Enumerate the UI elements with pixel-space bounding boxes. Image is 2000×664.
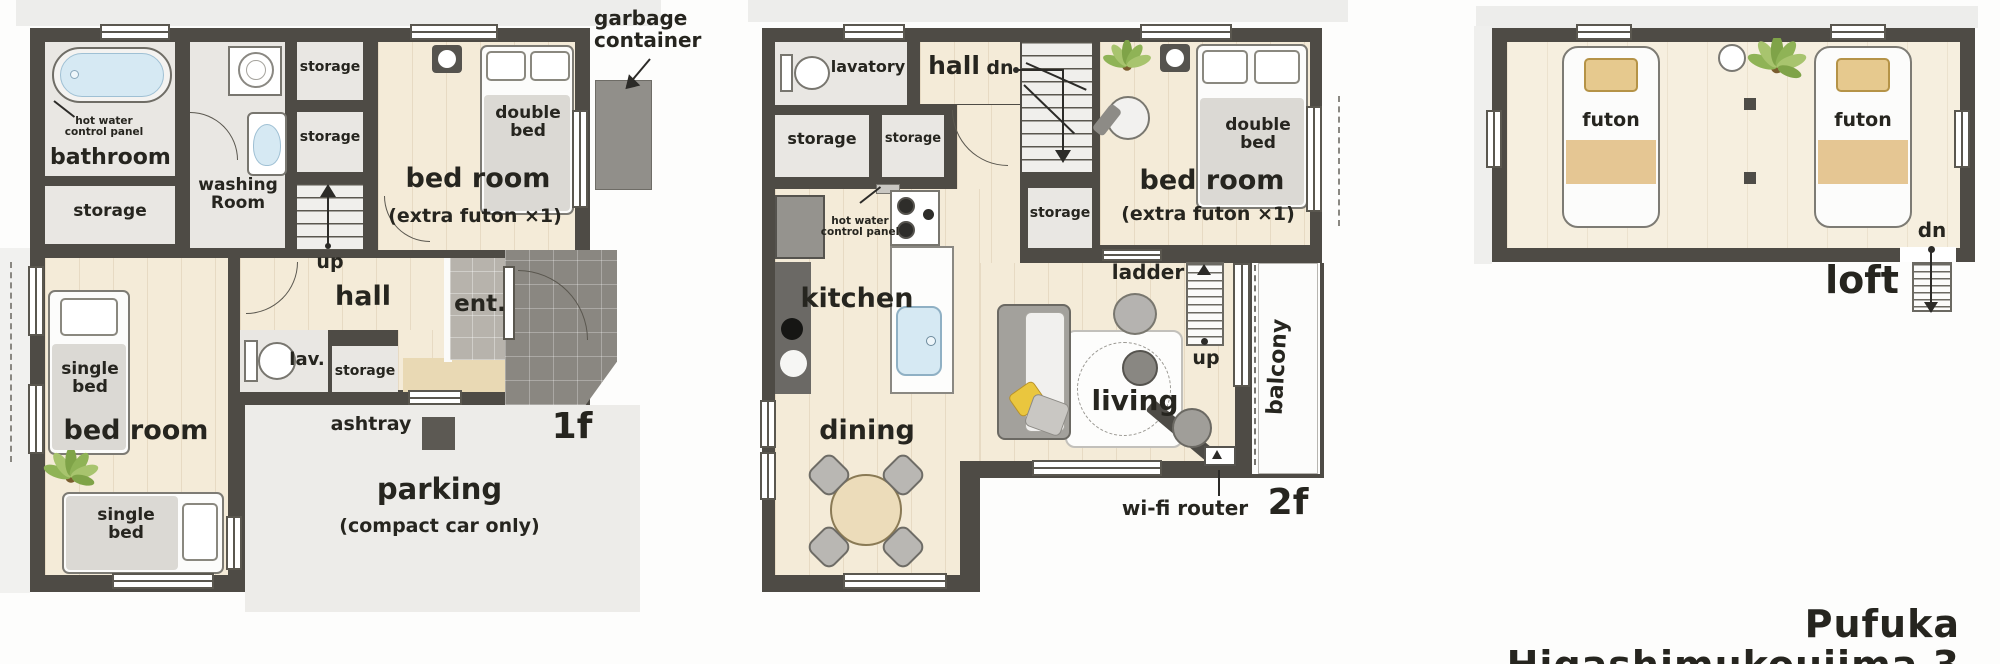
floor-plan-sheet: hot water control panel bathroom storage… xyxy=(0,0,2000,664)
label-futon: futon xyxy=(1827,110,1899,131)
floor-label-loft: loft xyxy=(1816,260,1908,301)
ladder-arrow-line xyxy=(1930,252,1932,304)
futon-blanket xyxy=(1566,140,1656,184)
floor-marker xyxy=(1744,172,1756,184)
futon-pillow xyxy=(1836,58,1890,92)
window xyxy=(1486,110,1502,168)
page-title: Pufuka Higashimukoujima 3 xyxy=(1415,604,1960,664)
label-dn: dn xyxy=(1908,220,1956,242)
window xyxy=(1576,24,1632,40)
floor-marker xyxy=(1744,98,1756,110)
ladder-arrow-down xyxy=(1924,302,1938,313)
label-futon: futon xyxy=(1575,110,1647,131)
potted-plant xyxy=(1744,38,1810,92)
floor-plan-loft: futon futon dn loft xyxy=(0,0,2000,664)
side-table xyxy=(1718,44,1746,72)
futon-pillow xyxy=(1584,58,1638,92)
window xyxy=(1830,24,1886,40)
futon-blanket xyxy=(1818,140,1908,184)
window xyxy=(1954,110,1970,168)
